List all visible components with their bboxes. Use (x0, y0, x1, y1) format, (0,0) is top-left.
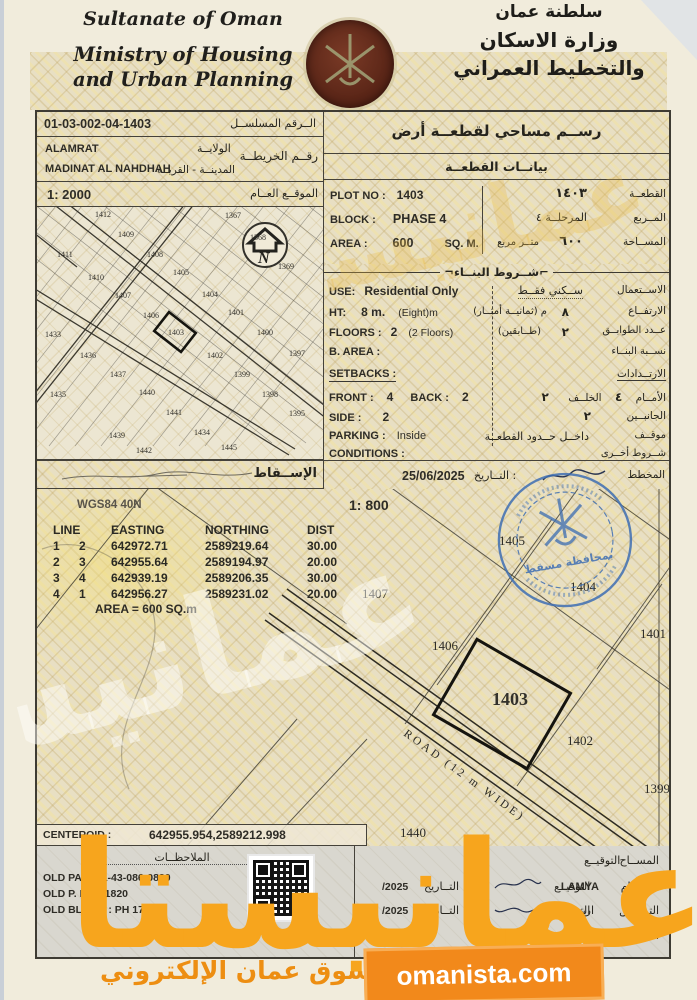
floors-value-ar: ٢ (562, 325, 569, 339)
embossed-seal (306, 20, 394, 108)
ministry-title-en: Sultanate of Oman Ministry of Housing an… (52, 8, 314, 91)
side-value: 2 (382, 410, 389, 424)
front-back-row: FRONT : 4 BACK : 2 (329, 390, 469, 404)
coords-cell: 3 (53, 571, 79, 585)
coords-row: 41642956.272589231.0220.00 (53, 587, 357, 601)
ministry-title-ar: سلطنة عمان وزارة الاسكان والتخطيط العمرا… (408, 2, 690, 80)
plot-no-label: PLOT NO : (330, 190, 386, 202)
svg-text:N: N (257, 250, 271, 267)
plot-number-label: 1439 (109, 431, 125, 440)
building-conditions-header: ⌐شــروط البنــاء¬ (324, 264, 669, 280)
coords-cell: 642939.19 (111, 571, 205, 585)
plot-number-label: 1441 (166, 408, 182, 417)
back-value: 2 (462, 390, 469, 404)
side-label-ar: الجانبــين (627, 410, 667, 422)
plot-number-label: 1368 (250, 233, 266, 242)
ministry-en-line3: and Urban Planning (52, 68, 314, 91)
projection-label: الإســقاط (253, 466, 317, 481)
ministry-ar-line2: وزارة الاسكان (408, 28, 690, 52)
parking-label: PARKING : (329, 430, 386, 442)
projection-row: الإســقاط (37, 460, 324, 489)
ht-note: (Eight)m (398, 307, 438, 319)
wilaya-box: ALAMRAT الولايــة رقــم الخريطــة MADINA… (37, 137, 324, 182)
plot-no-row: PLOT NO : 1403 (330, 188, 423, 202)
plot-data-header: بيانــات القطعــة (324, 159, 669, 174)
plot-no-value-ar: ١٤٠٣ (555, 186, 587, 201)
ht-value: 8 m. (361, 305, 385, 319)
coords-cell: 3 (79, 555, 111, 569)
town-label: المدينــة - القريــة (157, 164, 235, 176)
plot-number-label: 1406 (432, 638, 459, 653)
area-note: AREA = 600 SQ.m (95, 602, 197, 616)
coords-cell: 1 (79, 587, 111, 601)
side-value-ar: ٢ (584, 409, 591, 423)
floors-label-ar: عــدد الطوابــق (602, 325, 666, 336)
plot-number-label: 1442 (136, 446, 152, 455)
coords-cell: 20.00 (307, 587, 357, 601)
coords-cell: 2 (79, 539, 111, 553)
coords-cell: 20.00 (307, 555, 357, 569)
plot-number-label: 1436 (80, 351, 96, 360)
conditions-area: USE: Residential Only ســكني فقــط الاسـ… (324, 280, 669, 462)
cadastral-map-1-2000: N 14121367140913681411140813691410140514… (37, 207, 324, 460)
parking-label-ar: موقــف (634, 430, 666, 441)
area-label: AREA : (330, 238, 367, 250)
projection-scribble (57, 466, 257, 484)
omanista-site-button: omanista.com (363, 943, 604, 1000)
coords-cell: 30.00 (307, 571, 357, 585)
scale-row: 1: 2000 الموقــع العــام (37, 182, 324, 207)
plot-number-label: 1398 (262, 390, 278, 399)
front-label: FRONT : (329, 392, 374, 404)
back-label: BACK : (410, 392, 449, 404)
coords-cell: 642956.27 (111, 587, 205, 601)
plot-fields: PLOT NO : 1403 BLOCK : PHASE 4 AREA : 60… (324, 180, 669, 264)
floors-note: (2 Floors) (408, 327, 453, 339)
ministry-ar-line3: والتخطيط العمراني (408, 56, 690, 80)
coords-header-easting: EASTING (111, 523, 205, 537)
blue-official-stamp: بمحافظة مسقط (482, 457, 650, 625)
coords-header-line: LINE (53, 523, 111, 537)
document-title: رســم مساحي لقطعــة أرض (324, 122, 669, 140)
coords-cell: 2589206.35 (205, 571, 307, 585)
serial-number: 01-03-002-04-1403 (44, 117, 151, 131)
plot-data-strip: بيانــات القطعــة (324, 154, 669, 180)
serial-label: الــرقم المسلســل (230, 117, 316, 130)
coords-cell: 30.00 (307, 539, 357, 553)
plot-number-label: 1404 (202, 290, 218, 299)
plot-number-label: 1367 (225, 211, 241, 220)
ht-label: HT: (329, 307, 346, 319)
plot-number-label: 1407 (115, 291, 131, 300)
barea-label-ar: نســبة البنــاء (611, 346, 666, 357)
coords-row: 34642939.192589206.3530.00 (53, 571, 357, 585)
plot-number-label: 1408 (147, 250, 163, 259)
plot-number-label: 1402 (567, 733, 593, 748)
omanista-tagline: سوق عمان الإلكتروني (100, 956, 372, 985)
front-value: 4 (387, 390, 394, 404)
conditions-header-text: ⌐شــروط البنــاء¬ (440, 265, 552, 279)
use-value-ar: ســكني فقــط (518, 284, 583, 299)
coords-cell: 1 (53, 539, 79, 553)
side-label: SIDE : (329, 412, 361, 424)
coords-cell: 2 (53, 555, 79, 569)
area-row: AREA : 600 SQ. M. (330, 236, 479, 250)
coords-row: 12642972.712589219.6430.00 (53, 539, 357, 553)
back-label-ar: الخلــف (568, 392, 601, 404)
coords-cell: 2589219.64 (205, 539, 307, 553)
plot-number-label: 1405 (173, 268, 189, 277)
area-unit-ar: متــر مربع (497, 237, 539, 248)
setbacks-label: SETBACKS : (329, 368, 396, 382)
ht-note-ar: م (ثمانيــة أمتــار) (473, 306, 547, 317)
conditions-label: CONDITIONS : (329, 448, 405, 460)
parking-value: Inside (397, 430, 426, 442)
plot-number-label: 1409 (118, 230, 134, 239)
plot-number-label: 1369 (278, 262, 294, 271)
coords-row: 23642955.642589194.9720.00 (53, 555, 357, 569)
coords-header-northing: NORTHING (205, 523, 307, 537)
block-value: PHASE 4 (393, 212, 447, 226)
plot-number-label: 1403 (168, 328, 184, 337)
plot-number-label: 1412 (95, 210, 111, 219)
block-row: BLOCK : PHASE 4 (330, 212, 446, 226)
block-value-ar: المرحلــة ٤ (536, 211, 587, 224)
use-label-ar: الاســتعمال (617, 284, 666, 296)
coords-cell: 4 (53, 587, 79, 601)
plot-number-label: 1410 (88, 273, 104, 282)
setbacks-label-ar: الارتــدادات (617, 368, 666, 381)
plot-number-label: 1401 (640, 626, 666, 641)
town-value: MADINAT AL NAHDHAH (45, 163, 171, 175)
serial-row: 01-03-002-04-1403 الــرقم المسلســل (37, 112, 324, 137)
plot-number-label: 1445 (221, 443, 237, 452)
ht-value-ar: ٨ (562, 305, 569, 319)
oman-emblem-icon (306, 20, 394, 108)
plot-number-label: 1399 (644, 781, 669, 796)
barea-label: B. AREA : (329, 346, 380, 358)
parking-row: PARKING : Inside (329, 430, 426, 442)
omanista-site-url: omanista.com (396, 957, 571, 992)
plot-number-label: 1433 (45, 330, 61, 339)
wilaya-value: ALAMRAT (45, 143, 99, 155)
plot-number-label: 1435 (50, 390, 66, 399)
floors-note-ar: (طــابقين) (498, 326, 541, 337)
ministry-en-line1: Sultanate of Oman (52, 8, 314, 30)
site-plan-scale: 1: 2000 (47, 187, 91, 202)
plot-number-label: 1402 (207, 351, 223, 360)
plot-number-label: 1407 (362, 586, 389, 601)
coords-cell: 642955.64 (111, 555, 205, 569)
floors-row: FLOORS : 2 (2 Floors) (329, 325, 453, 339)
plot-number-label: 1406 (143, 311, 159, 320)
coordinates-table: LINEEASTINGNORTHINGDIST12642972.71258921… (53, 523, 357, 601)
plot-number-label: 1411 (57, 250, 73, 259)
floors-label: FLOORS : (329, 327, 382, 339)
plot-number-label: 1397 (289, 349, 305, 358)
plan-scale-label: 1: 800 (349, 497, 389, 513)
scanned-land-survey-document: Sultanate of Oman Ministry of Housing an… (0, 0, 697, 1000)
front-value-ar: ٤ (615, 390, 622, 404)
plot-number-label: 1395 (289, 409, 305, 418)
plot-number-label: 1434 (194, 428, 210, 437)
side-row: SIDE : 2 (329, 410, 389, 424)
coords-cell: 2589231.02 (205, 587, 307, 601)
coords-cell: 642972.71 (111, 539, 205, 553)
area-value: 600 (393, 236, 414, 250)
conditions-header-label: شــروط البنــاء (454, 265, 539, 279)
datum-label: WGS84 40N (77, 499, 142, 511)
wilaya-label: الولايــة (197, 142, 231, 155)
approval-date: 25/06/2025 (402, 469, 465, 483)
parking-value-ar: داخــل حــدود القطعــة (485, 430, 589, 443)
site-plan-label: الموقــع العــام (250, 187, 318, 200)
plot-number-label: 1401 (228, 308, 244, 317)
ht-row: HT: 8 m. (Eight)m (329, 305, 438, 319)
back-value-ar: ٢ (542, 390, 549, 404)
plot-no-value: 1403 (397, 188, 424, 202)
block-label: BLOCK : (330, 214, 376, 226)
document-title-box: رســم مساحي لقطعــة أرض (324, 112, 669, 154)
front-label-ar: الأمــام (636, 392, 666, 404)
ministry-en-line2: Ministry of Housing (52, 43, 314, 66)
floors-value: 2 (391, 325, 398, 339)
coords-cell: 2589194.97 (205, 555, 307, 569)
area-unit: SQ. M. (444, 238, 478, 250)
area-value-ar: ٦٠٠ (559, 234, 583, 249)
plot-number-label: 1440 (139, 388, 155, 397)
planner-label: المخطط (627, 469, 665, 481)
plot-number-label: 1403 (492, 689, 528, 709)
use-label: USE: (329, 286, 355, 298)
plot-number-label: 1399 (234, 370, 250, 379)
area-label-ar: المســاحة (623, 236, 666, 248)
plot-no-label-ar: القطعــة (629, 188, 666, 200)
plot-number-label: 1437 (110, 370, 126, 379)
front-back-row-ar: الأمــام ٤ الخلــف ٢ (542, 390, 666, 404)
use-value: Residential Only (364, 284, 458, 298)
plot-number-label: 1400 (257, 328, 273, 337)
use-row: USE: Residential Only (329, 284, 458, 298)
ministry-ar-line1: سلطنة عمان (408, 2, 690, 22)
north-arrow-icon: N (243, 223, 287, 267)
ht-label-ar: الارتفــاع (628, 305, 666, 317)
coords-header-dist: DIST (307, 523, 357, 537)
map-number-label: رقــم الخريطــة (240, 149, 318, 163)
conditions-label-ar: شــروط أخــرى (601, 448, 666, 459)
coords-cell: 4 (79, 571, 111, 585)
block-label-ar: المــربع (633, 212, 666, 224)
